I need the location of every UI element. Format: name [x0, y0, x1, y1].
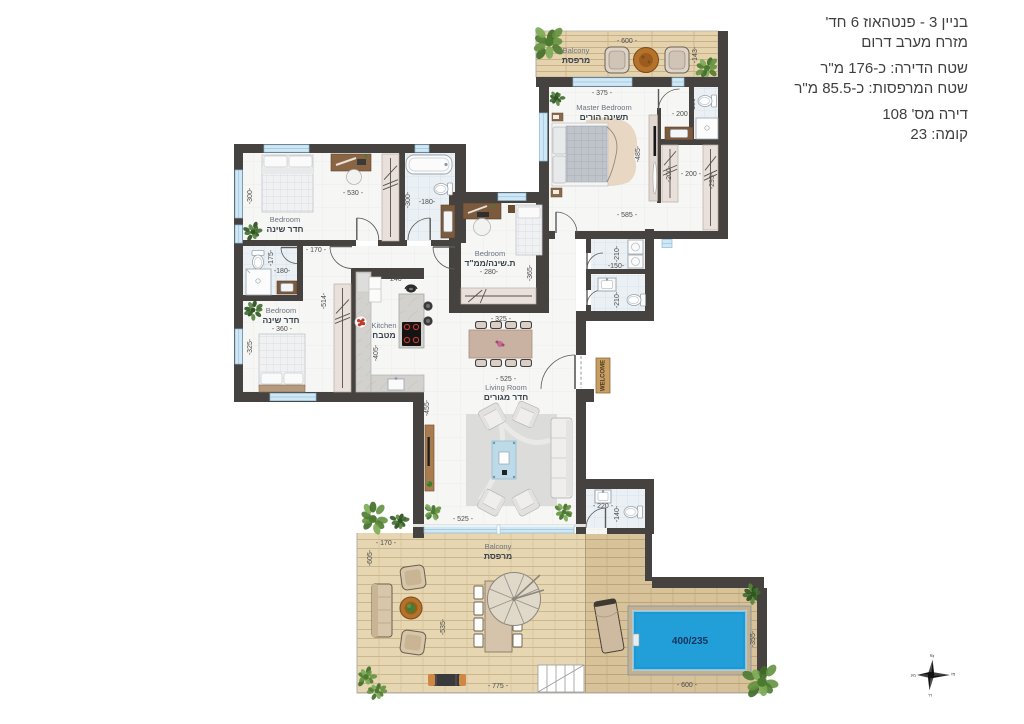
svg-text:חדר שינה: חדר שינה	[267, 224, 304, 234]
svg-text:-295-: -295-	[709, 172, 716, 189]
svg-text:-355-: -355-	[750, 630, 757, 647]
svg-text:Living Room: Living Room	[485, 383, 527, 392]
svg-text:- 525 -: - 525 -	[496, 376, 517, 383]
svg-text:תשינה הורים: תשינה הורים	[580, 112, 629, 122]
svg-text:-210-: -210-	[614, 245, 621, 262]
svg-text:Master Bedroom: Master Bedroom	[576, 103, 631, 112]
svg-text:מרפסת: מרפסת	[562, 55, 590, 65]
svg-text:- 375 -: - 375 -	[592, 90, 613, 97]
svg-text:-514-: -514-	[321, 292, 328, 309]
svg-text:- 600 -: - 600 -	[677, 682, 698, 689]
svg-text:-605-: -605-	[367, 549, 374, 566]
svg-text:- 530 -: - 530 -	[343, 190, 364, 197]
svg-text:-150-: -150-	[608, 263, 625, 270]
svg-text:מז: מז	[951, 671, 956, 676]
svg-text:מע: מע	[911, 672, 917, 678]
svg-text:- 280-: - 280-	[480, 269, 499, 276]
svg-text:-143-: -143-	[692, 46, 699, 63]
svg-text:Kitchen: Kitchen	[371, 321, 396, 330]
svg-text:חדר שינה: חדר שינה	[263, 315, 300, 325]
svg-text:ת.שינה/ממ"ד: ת.שינה/ממ"ד	[465, 258, 516, 268]
svg-text:-180-: -180-	[274, 268, 291, 275]
svg-text:-300-: -300-	[405, 191, 412, 208]
svg-text:-180-: -180-	[419, 199, 436, 206]
svg-text:חדר מגורים: חדר מגורים	[484, 392, 528, 402]
svg-text:-535-: -535-	[440, 618, 447, 635]
svg-text:-210-: -210-	[614, 291, 621, 308]
svg-text:-180-: -180-	[690, 95, 697, 112]
svg-text:400/235: 400/235	[672, 636, 709, 647]
svg-text:מטבח: מטבח	[372, 330, 395, 340]
svg-text:-140-: -140-	[614, 505, 621, 522]
svg-text:-325-: -325-	[247, 338, 254, 355]
svg-text:-175-: -175-	[268, 249, 275, 266]
svg-text:- 220 -: - 220 -	[593, 503, 614, 510]
svg-text:Bedroom: Bedroom	[475, 249, 505, 258]
svg-text:- 240 -: - 240 -	[386, 276, 407, 283]
svg-text:-200-: -200-	[666, 165, 673, 182]
svg-text:- 325 -: - 325 -	[491, 316, 512, 323]
svg-text:-455-: -455-	[424, 399, 431, 416]
svg-text:-300-: -300-	[247, 187, 254, 204]
svg-text:Balcony: Balcony	[563, 46, 590, 55]
svg-text:- 360 -: - 360 -	[272, 326, 293, 333]
svg-text:- 170 -: - 170 -	[376, 540, 397, 547]
svg-text:-405-: -405-	[373, 344, 380, 361]
svg-text:-365-: -365-	[527, 264, 534, 281]
svg-text:Bedroom: Bedroom	[270, 215, 300, 224]
svg-text:- 525 -: - 525 -	[453, 516, 474, 523]
svg-text:- 775 -: - 775 -	[488, 683, 509, 690]
svg-text:- 600 -: - 600 -	[617, 38, 638, 45]
svg-text:- 170 -: - 170 -	[306, 247, 327, 254]
svg-text:Bedroom: Bedroom	[266, 306, 296, 315]
svg-text:Balcony: Balcony	[485, 542, 512, 551]
svg-text:-485-: -485-	[635, 145, 642, 162]
svg-text:- 200 -: - 200 -	[681, 171, 702, 178]
svg-text:WELCOME: WELCOME	[601, 360, 607, 391]
svg-text:מרפסת: מרפסת	[484, 551, 512, 561]
svg-text:- 585 -: - 585 -	[617, 212, 638, 219]
